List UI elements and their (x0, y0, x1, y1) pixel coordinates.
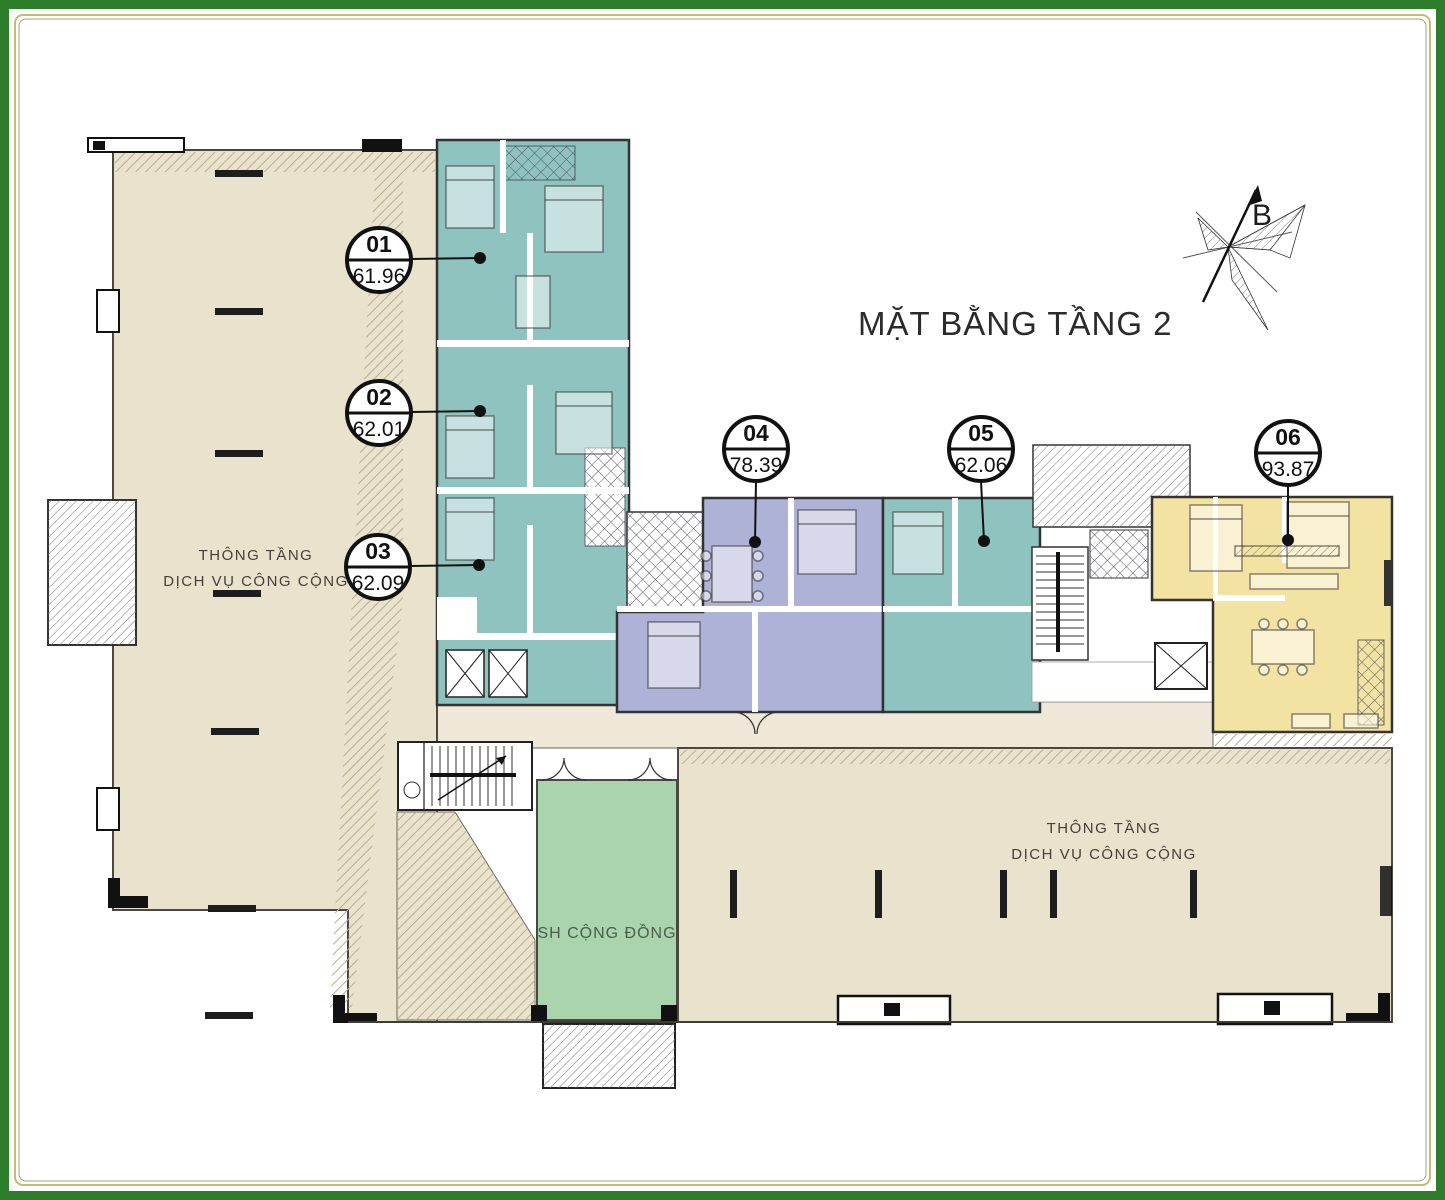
leader-dot (749, 536, 761, 548)
plan-title: MẶT BẰNG TẦNG 2 (858, 305, 1173, 342)
furniture-bed (545, 186, 603, 252)
community-room (537, 758, 677, 1020)
void-area-right (678, 734, 1392, 1022)
furniture-bed (556, 392, 612, 454)
furniture-bed (446, 416, 494, 478)
furniture-bed (1287, 502, 1349, 568)
svg-text:THÔNG TẦNG: THÔNG TẦNG (199, 547, 314, 564)
north-label: B (1252, 199, 1272, 232)
svg-text:01: 01 (366, 231, 392, 257)
furniture-bed (798, 510, 856, 574)
community-label: SH CỘNG ĐỒNG (537, 923, 676, 942)
svg-text:04: 04 (743, 420, 769, 446)
svg-text:62.06: 62.06 (955, 454, 1008, 477)
leader-dot (978, 535, 990, 547)
furniture-dining-table (1252, 619, 1314, 675)
furniture-bed (648, 622, 700, 688)
svg-text:93.87: 93.87 (1262, 458, 1315, 481)
svg-text:03: 03 (365, 538, 391, 564)
entry-canopy-hatch (543, 1024, 675, 1088)
floor-plan-canvas: 01 61.96 02 62.01 03 62.09 04 78.39 05 6… (0, 0, 1445, 1200)
svg-text:61.96: 61.96 (353, 265, 406, 288)
svg-text:62.09: 62.09 (352, 572, 405, 595)
furniture-bed (1190, 505, 1242, 571)
furniture-wardrobe (1235, 546, 1339, 556)
svg-text:02: 02 (366, 384, 392, 410)
furniture-bed (446, 498, 494, 560)
furniture-sofa (1250, 574, 1338, 589)
furniture-table (516, 276, 550, 328)
leader-dot (473, 559, 485, 571)
svg-text:DỊCH VỤ CÔNG CỘNG: DỊCH VỤ CÔNG CỘNG (163, 573, 349, 590)
svg-text:05: 05 (968, 420, 994, 446)
svg-text:THÔNG TẦNG: THÔNG TẦNG (1047, 820, 1162, 837)
svg-text:78.39: 78.39 (730, 454, 783, 477)
furniture-dining-table (701, 546, 763, 602)
furniture-bed (893, 512, 943, 574)
svg-text:06: 06 (1275, 424, 1301, 450)
leader-dot (474, 252, 486, 264)
furniture-bed (446, 166, 494, 228)
light-well-crosshatch (627, 512, 703, 612)
svg-text:DỊCH VỤ CÔNG CỘNG: DỊCH VỤ CÔNG CỘNG (1011, 846, 1197, 863)
svg-text:62.01: 62.01 (353, 418, 406, 441)
stair-bottom-left (398, 742, 532, 810)
leader-dot (474, 405, 486, 417)
leader-dot (1282, 534, 1294, 546)
